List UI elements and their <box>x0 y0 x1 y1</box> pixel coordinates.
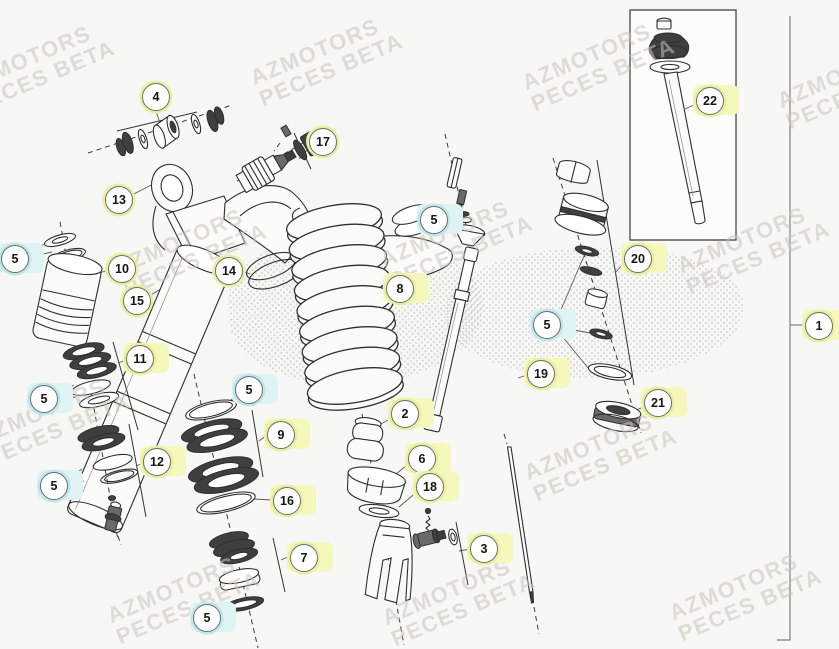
inset-box <box>630 10 736 240</box>
callout-number: 5 <box>533 311 561 339</box>
callout-number: 2 <box>391 400 419 428</box>
callout-number: 18 <box>416 473 444 501</box>
callout-number: 5 <box>193 604 221 632</box>
callout-number: 16 <box>273 487 301 515</box>
callout-number: 13 <box>105 186 133 214</box>
callout-number: 4 <box>142 83 170 111</box>
callout-number: 5 <box>1 245 29 273</box>
assembly-bracket <box>777 16 804 640</box>
part-spring <box>284 197 406 416</box>
part-group-top-mount-spacers <box>88 105 232 157</box>
callout-number: 22 <box>696 87 724 115</box>
callout-number: 9 <box>267 421 295 449</box>
callout-number: 5 <box>420 206 448 234</box>
callout-number: 3 <box>470 535 498 563</box>
callout-number: 10 <box>108 255 136 283</box>
callout-number: 21 <box>644 389 672 417</box>
callout-number: 5 <box>30 385 58 413</box>
callout-number: 15 <box>123 287 151 315</box>
callout-number: 20 <box>624 245 652 273</box>
callout-number: 6 <box>408 445 436 473</box>
callout-number: 7 <box>290 544 318 572</box>
callout-number: 12 <box>143 448 171 476</box>
part-group-valve <box>412 508 470 585</box>
callout-number: 1 <box>805 312 833 340</box>
callout-number: 14 <box>215 257 243 285</box>
callout-number: 17 <box>309 128 337 156</box>
exploded-parts-diagram: AZMOTORSPECES BETAAZMOTORSPECES BETAAZMO… <box>0 0 839 649</box>
callout-number: 5 <box>235 376 263 404</box>
callout-number: 8 <box>386 275 414 303</box>
callout-number: 19 <box>527 360 555 388</box>
callout-number: 11 <box>126 345 154 373</box>
callout-number: 5 <box>40 472 68 500</box>
